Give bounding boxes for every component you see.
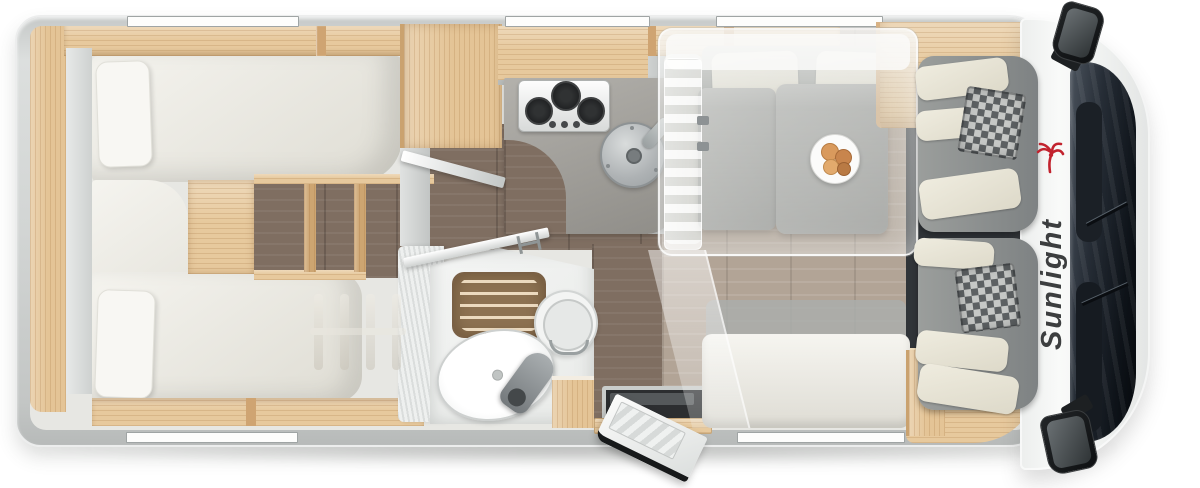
window-top-rear: [127, 16, 299, 27]
window-bottom-dinette: [737, 432, 905, 443]
hob-burner: [525, 97, 553, 125]
kitchen-overhead-locker: [498, 26, 648, 85]
wardrobe: [400, 24, 502, 148]
hob-knob: [549, 121, 556, 128]
plate: [810, 134, 860, 184]
shower-grate-slats: [460, 279, 538, 331]
bed-bottom-pillow: [94, 289, 156, 399]
ghost-ladder: [314, 294, 402, 370]
ladder-rail: [310, 328, 406, 335]
nightstand-block: [188, 180, 254, 274]
mirror-glass: [1045, 415, 1092, 470]
window-top-kitchen: [505, 16, 650, 27]
hob-knob: [561, 121, 568, 128]
passenger-seat: [918, 238, 1038, 410]
windshield: [1070, 62, 1136, 442]
checkered-headrest: [954, 263, 1021, 334]
bathroom-cabinet: [552, 376, 594, 428]
brand-logo-text: Sunlight: [1037, 174, 1067, 350]
drop-down-bed-ladder: [664, 58, 702, 250]
step-divider: [304, 184, 316, 272]
bench-hinge: [697, 142, 709, 151]
sink-drain: [626, 148, 642, 164]
bedside-gray-panel: [66, 48, 92, 394]
headboard-wood-panel: [30, 26, 66, 412]
bath-faucet-knob: [504, 385, 529, 410]
bench-hinge: [697, 116, 709, 125]
checkered-headrest: [957, 86, 1027, 161]
window-top-dinette: [716, 16, 883, 27]
driver-seat: [918, 56, 1038, 232]
motorhome-floorplan: Sunlight: [0, 0, 1200, 488]
mirror-glass: [1056, 6, 1099, 59]
sink-screw: [606, 164, 610, 168]
step-divider: [354, 184, 366, 272]
gas-hob: [518, 80, 610, 132]
hob-burner: [577, 97, 605, 125]
sink-screw: [630, 126, 634, 130]
bread-roll: [837, 162, 851, 176]
shelf-divider: [316, 26, 326, 56]
window-bottom-rear: [126, 432, 298, 443]
bath-sink-drain: [491, 368, 504, 381]
palm-icon: [1034, 140, 1066, 174]
drop-down-bed-front-edge: [666, 34, 910, 70]
hob-knob: [573, 121, 580, 128]
shelf-divider: [246, 398, 256, 426]
bedroom-bottom-shelf: [92, 398, 424, 426]
bed-top-pillow: [95, 60, 153, 168]
